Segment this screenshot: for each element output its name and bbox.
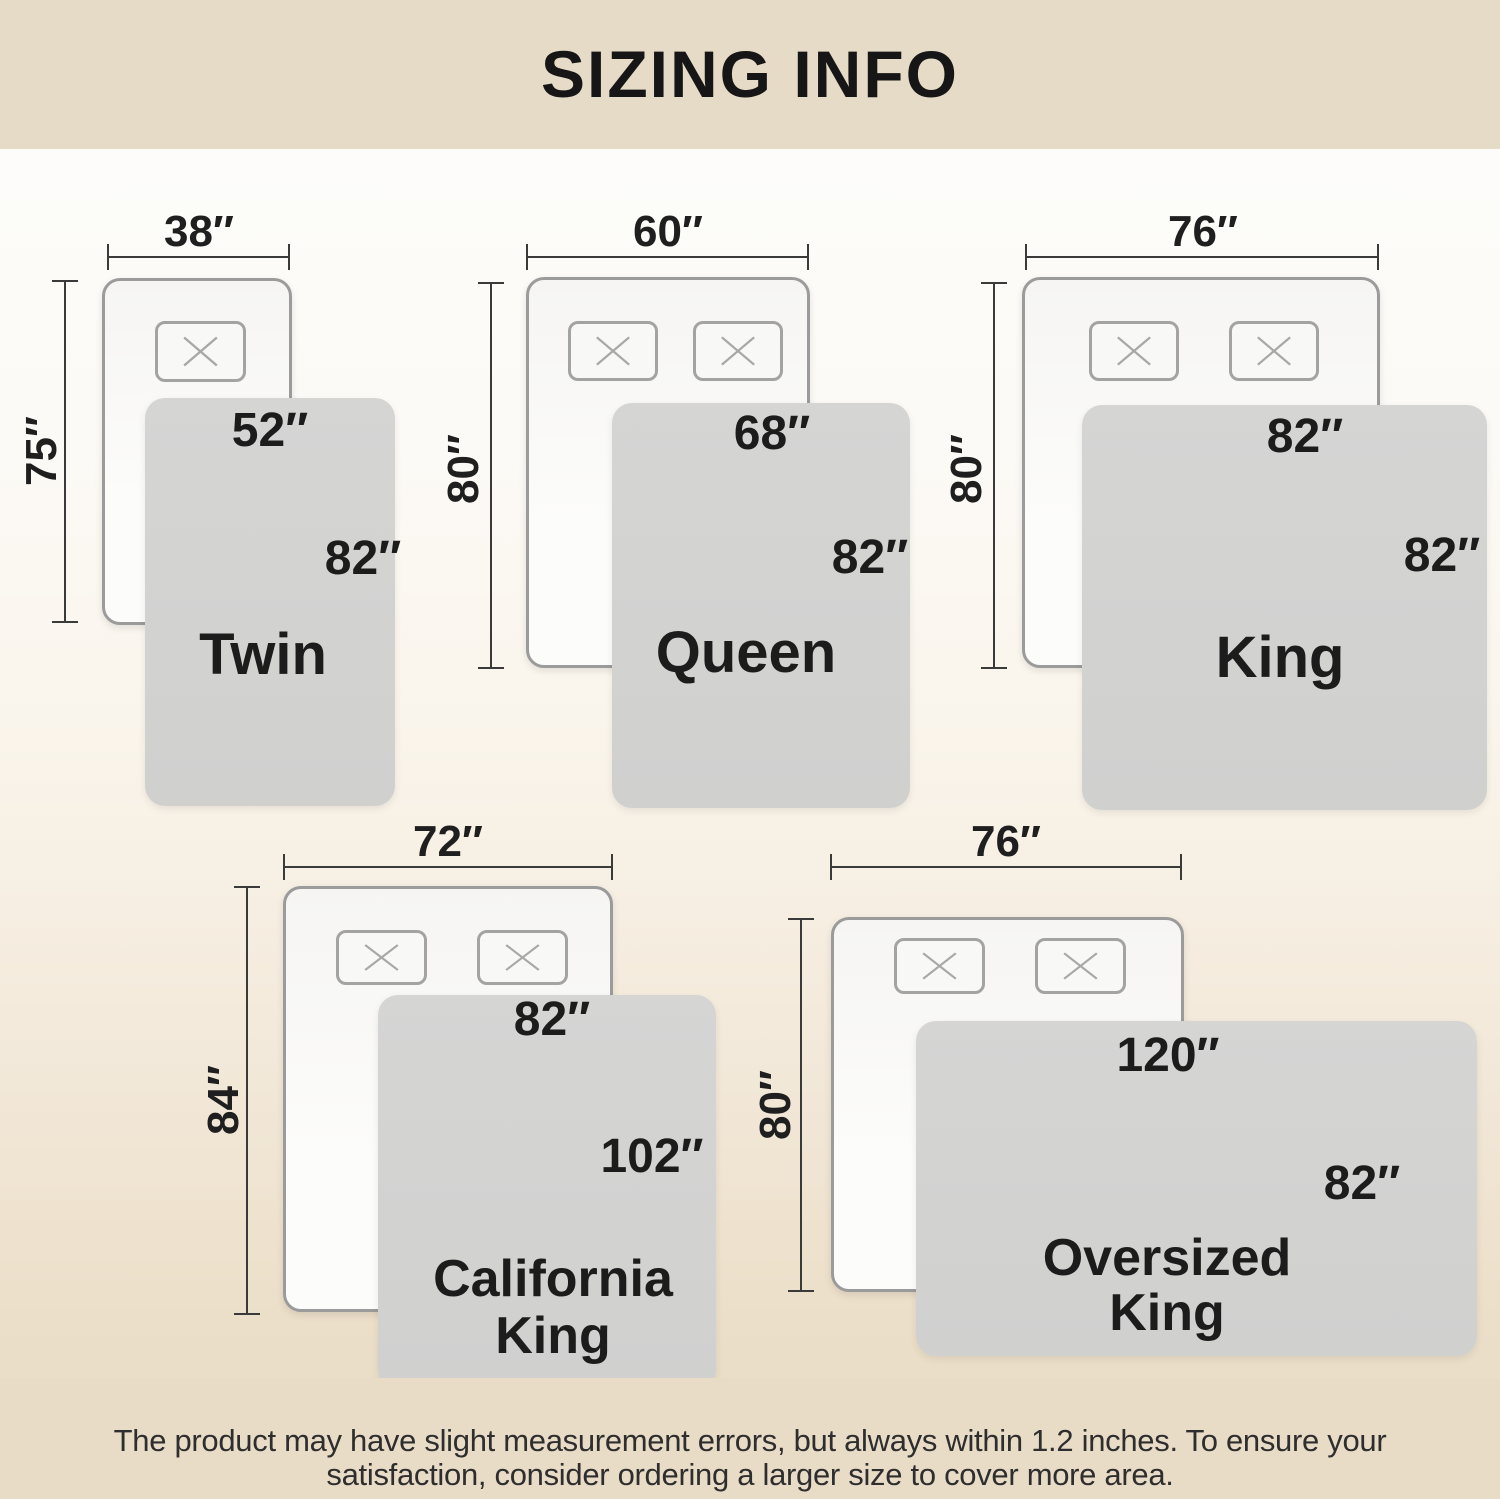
blanket-name-label: King xyxy=(1130,629,1430,687)
pillow xyxy=(477,930,568,985)
disclaimer-line-2: satisfaction, consider ordering a larger… xyxy=(0,1458,1500,1492)
blanket-width-label: 52″ xyxy=(170,407,370,455)
height-dimension-tick xyxy=(52,280,78,282)
bed-width-label: 60″ xyxy=(568,210,768,254)
bed-height-label: 80″ xyxy=(754,1005,798,1205)
pillow-cross-icon xyxy=(571,324,655,378)
width-dimension-tick xyxy=(807,244,809,270)
bed-height-label: 75″ xyxy=(20,351,64,551)
blanket-name-label: California xyxy=(403,1253,703,1305)
width-dimension-line xyxy=(831,866,1181,868)
blanket-name-label: King xyxy=(1017,1287,1317,1339)
blanket xyxy=(612,403,910,808)
width-dimension-tick xyxy=(526,244,528,270)
blanket-name-label: Twin xyxy=(113,626,413,684)
blanket xyxy=(1082,405,1487,810)
disclaimer-text: The product may have slight measurement … xyxy=(0,1424,1500,1492)
pillow-cross-icon xyxy=(339,933,424,982)
width-dimension-tick xyxy=(1377,244,1379,270)
height-dimension-line xyxy=(490,283,492,669)
blanket-width-label: 68″ xyxy=(672,410,872,458)
bed-height-label: 84″ xyxy=(202,1000,246,1200)
pillow-cross-icon xyxy=(158,324,243,379)
blanket-name-label: Oversized xyxy=(1017,1232,1317,1284)
height-dimension-tick xyxy=(788,918,814,920)
pillow-cross-icon xyxy=(897,941,982,991)
pillow-cross-icon xyxy=(1092,324,1176,378)
height-dimension-tick xyxy=(478,282,504,284)
width-dimension-tick xyxy=(830,854,832,880)
width-dimension-tick xyxy=(1025,244,1027,270)
bed-height-label: 80″ xyxy=(442,369,486,569)
pillow-cross-icon xyxy=(480,933,565,982)
height-dimension-tick xyxy=(478,667,504,669)
blanket-width-label: 82″ xyxy=(452,996,652,1044)
width-dimension-line xyxy=(108,256,290,258)
pillow xyxy=(1035,938,1126,994)
sizing-info-page: SIZING INFO 38″ 75″ 52″ 82″ Twin 60″ 80″ xyxy=(0,0,1500,1499)
blanket-name-label: King xyxy=(403,1310,703,1362)
height-dimension-line xyxy=(993,283,995,669)
blanket-width-label: 120″ xyxy=(1068,1032,1268,1080)
pillow-cross-icon xyxy=(1038,941,1123,991)
blanket-height-label: 82″ xyxy=(770,534,970,582)
pillow xyxy=(568,321,658,381)
pillow-cross-icon xyxy=(1232,324,1316,378)
page-title: SIZING INFO xyxy=(0,0,1500,149)
bed-height-label: 80″ xyxy=(945,369,989,569)
blanket-height-label: 82″ xyxy=(263,535,463,583)
pillow xyxy=(1089,321,1179,381)
height-dimension-tick xyxy=(234,1313,260,1315)
width-dimension-tick xyxy=(1180,854,1182,880)
pillow xyxy=(693,321,783,381)
height-dimension-tick xyxy=(981,667,1007,669)
width-dimension-tick xyxy=(283,854,285,880)
height-dimension-tick xyxy=(52,621,78,623)
blanket-name-label: Queen xyxy=(596,624,896,682)
bed-width-label: 72″ xyxy=(348,820,548,864)
blanket-height-label: 102″ xyxy=(552,1133,752,1181)
bed-width-label: 76″ xyxy=(1103,210,1303,254)
height-dimension-tick xyxy=(981,282,1007,284)
bed-width-label: 38″ xyxy=(99,210,299,254)
width-dimension-line xyxy=(284,866,612,868)
width-dimension-line xyxy=(1026,256,1379,258)
pillow xyxy=(894,938,985,994)
pillow xyxy=(155,321,246,382)
blanket-height-label: 82″ xyxy=(1342,532,1500,580)
width-dimension-tick xyxy=(611,854,613,880)
disclaimer-line-1: The product may have slight measurement … xyxy=(0,1424,1500,1458)
blanket-width-label: 82″ xyxy=(1205,413,1405,461)
pillow xyxy=(336,930,427,985)
height-dimension-tick xyxy=(788,1290,814,1292)
height-dimension-tick xyxy=(234,886,260,888)
blanket-height-label: 82″ xyxy=(1262,1160,1462,1208)
width-dimension-line xyxy=(527,256,809,258)
blanket xyxy=(145,398,395,806)
pillow-cross-icon xyxy=(696,324,780,378)
bed-width-label: 76″ xyxy=(906,820,1106,864)
pillow xyxy=(1229,321,1319,381)
height-dimension-line xyxy=(800,920,802,1292)
